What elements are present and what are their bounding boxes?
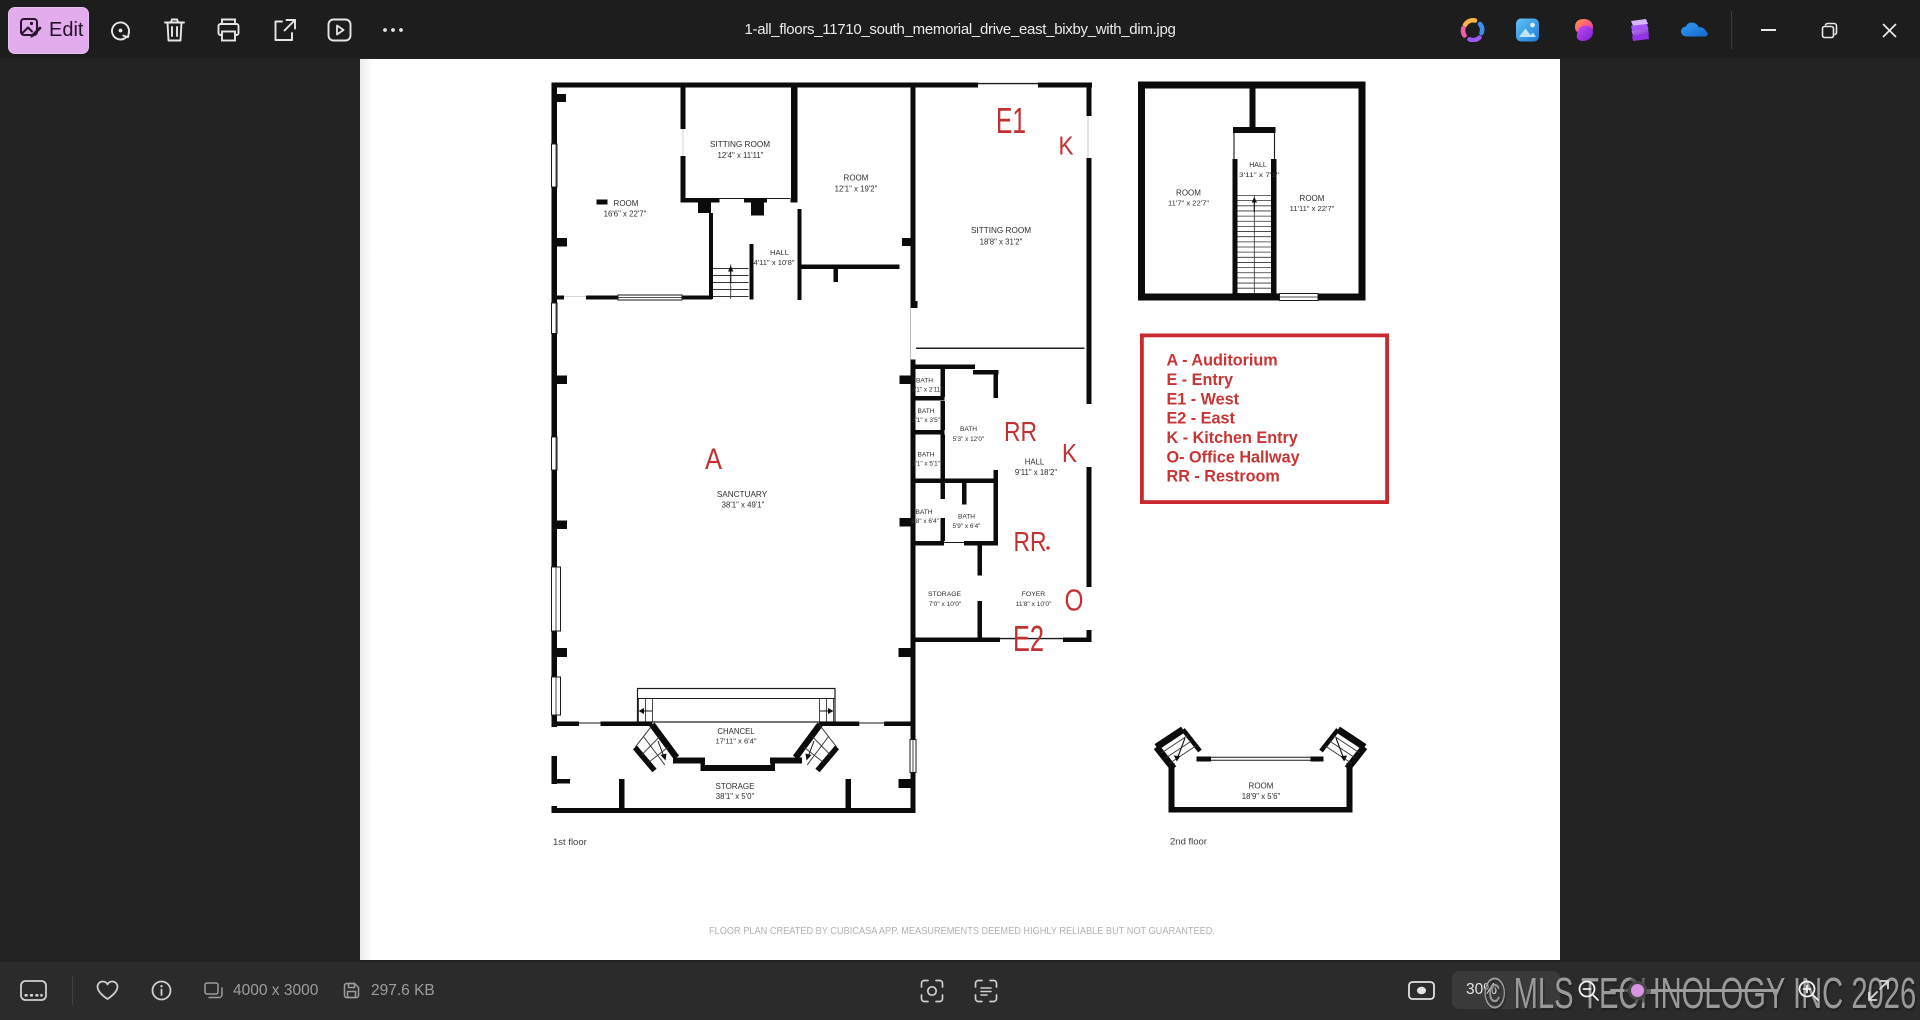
svg-text:1st floor: 1st floor xyxy=(553,837,587,848)
svg-text:4'11" x 10'8": 4'11" x 10'8" xyxy=(753,258,794,267)
svg-text:3'1" x 5'1": 3'1" x 5'1" xyxy=(912,461,940,468)
svg-text:BATH: BATH xyxy=(960,426,977,433)
svg-text:BATH: BATH xyxy=(917,452,934,459)
svg-text:5'9" x 6'4": 5'9" x 6'4" xyxy=(953,523,981,530)
svg-text:BATH: BATH xyxy=(915,509,932,516)
svg-text:12'1" x 19'2": 12'1" x 19'2" xyxy=(835,185,878,194)
svg-text:RR: RR xyxy=(1014,526,1047,557)
svg-text:RR: RR xyxy=(1004,416,1037,447)
svg-text:E2 - East: E2 - East xyxy=(1167,410,1236,428)
svg-text:E1 - West: E1 - West xyxy=(1167,390,1240,408)
svg-text:12'4" x 11'11": 12'4" x 11'11" xyxy=(718,151,764,160)
svg-text:ROOM: ROOM xyxy=(1300,194,1325,203)
svg-text:O: O xyxy=(1065,583,1084,618)
svg-text:FLOOR PLAN CREATED BY CUBICASA: FLOOR PLAN CREATED BY CUBICASA APP. MEAS… xyxy=(709,925,1215,937)
svg-text:ROOM: ROOM xyxy=(1176,189,1201,198)
svg-text:SANCTUARY: SANCTUARY xyxy=(717,490,768,499)
svg-text:E2: E2 xyxy=(1013,618,1044,659)
svg-text:O- Office Hallway: O- Office Hallway xyxy=(1167,448,1300,466)
svg-text:SITTING ROOM: SITTING ROOM xyxy=(710,140,770,149)
svg-text:18'9" x 5'6": 18'9" x 5'6" xyxy=(1242,792,1281,801)
svg-text:9'11" x 18'2": 9'11" x 18'2" xyxy=(1015,468,1057,477)
svg-text:3'1" x 2'11": 3'1" x 2'11" xyxy=(911,387,942,394)
svg-text:ROOM: ROOM xyxy=(1249,782,1274,791)
svg-text:ROOM: ROOM xyxy=(844,174,869,183)
svg-text:38'1" x 5'0": 38'1" x 5'0" xyxy=(716,792,755,801)
svg-text:STORAGE: STORAGE xyxy=(928,591,962,598)
svg-text:HALL: HALL xyxy=(1249,162,1267,169)
svg-text:HALL: HALL xyxy=(1025,458,1045,467)
svg-text:18'8" x 31'2": 18'8" x 31'2" xyxy=(980,238,1023,247)
svg-text:4'8" x 6'4": 4'8" x 6'4" xyxy=(911,518,939,525)
svg-text:38'1" x 49'1": 38'1" x 49'1" xyxy=(722,501,765,510)
svg-text:3'11" x 7'1": 3'11" x 7'1" xyxy=(1239,172,1280,179)
svg-text:SITTING ROOM: SITTING ROOM xyxy=(971,226,1031,235)
svg-text:E1: E1 xyxy=(996,100,1026,141)
svg-text:BATH: BATH xyxy=(916,378,933,385)
svg-text:RR - Restroom: RR - Restroom xyxy=(1167,468,1280,486)
svg-text:2nd floor: 2nd floor xyxy=(1170,837,1207,848)
svg-text:E - Entry: E - Entry xyxy=(1167,371,1234,389)
svg-text:ROOM: ROOM xyxy=(614,199,639,208)
svg-text:K - Kitchen Entry: K - Kitchen Entry xyxy=(1167,429,1298,447)
svg-text:11'8" x 10'0": 11'8" x 10'0" xyxy=(1016,601,1052,608)
svg-text:K: K xyxy=(1062,438,1078,468)
svg-text:11'11" x 22'7": 11'11" x 22'7" xyxy=(1290,204,1335,213)
svg-text:17'11" x 6'4": 17'11" x 6'4" xyxy=(715,737,756,746)
svg-text:FOYER: FOYER xyxy=(1022,591,1046,598)
svg-text:7'0" x 10'0": 7'0" x 10'0" xyxy=(929,601,962,608)
svg-text:BATH: BATH xyxy=(958,514,975,521)
svg-text:A - Auditorium: A - Auditorium xyxy=(1167,352,1278,370)
svg-text:BATH: BATH xyxy=(917,408,934,415)
svg-text:16'6" x 22'7": 16'6" x 22'7" xyxy=(604,210,647,219)
svg-text:HALL: HALL xyxy=(770,248,789,257)
svg-text:5'3" x 12'0": 5'3" x 12'0" xyxy=(953,436,985,443)
svg-text:11'7" x 22'7": 11'7" x 22'7" xyxy=(1168,199,1209,208)
svg-text:A: A xyxy=(705,443,722,476)
svg-text:CHANCEL: CHANCEL xyxy=(717,727,755,736)
svg-text:K: K xyxy=(1059,131,1075,161)
svg-text:3'1" x 3'5": 3'1" x 3'5" xyxy=(912,417,940,424)
svg-text:STORAGE: STORAGE xyxy=(716,782,755,791)
